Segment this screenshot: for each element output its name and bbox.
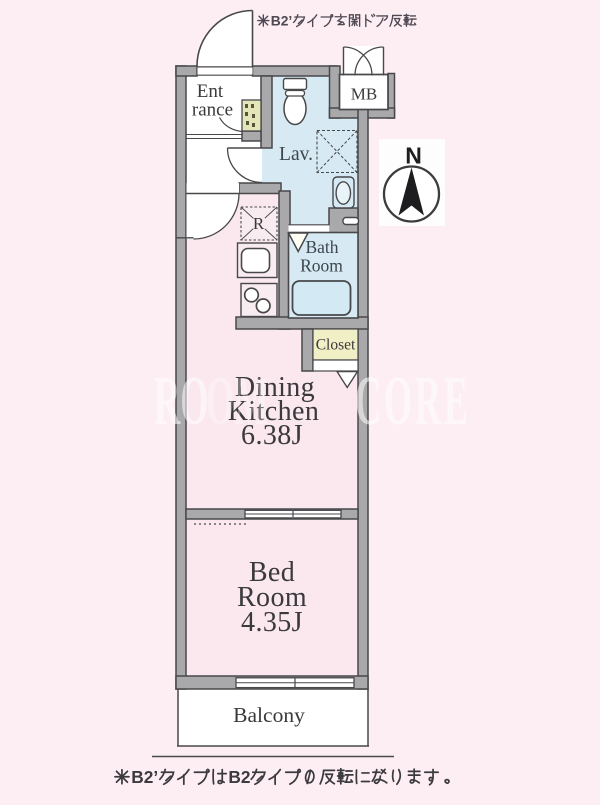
svg-text:Room: Room: [300, 256, 343, 276]
svg-text:Closet: Closet: [316, 337, 356, 354]
svg-text:OM: OM: [206, 363, 269, 441]
svg-text:MB: MB: [351, 85, 377, 104]
svg-text:rance: rance: [192, 100, 233, 121]
svg-text:B2’: B2’: [271, 14, 292, 29]
svg-text:N: N: [405, 143, 422, 169]
svg-text:CORE: CORE: [355, 363, 471, 441]
svg-text:Balcony: Balcony: [233, 703, 305, 727]
svg-text:R: R: [253, 214, 265, 233]
svg-text:Lav.: Lav.: [279, 144, 313, 165]
svg-text:B2’: B2’: [131, 767, 158, 787]
svg-text:B2: B2: [228, 767, 250, 787]
svg-text:4.35J: 4.35J: [241, 607, 303, 638]
svg-text:RO: RO: [154, 363, 209, 441]
svg-text:Bath: Bath: [305, 237, 338, 257]
